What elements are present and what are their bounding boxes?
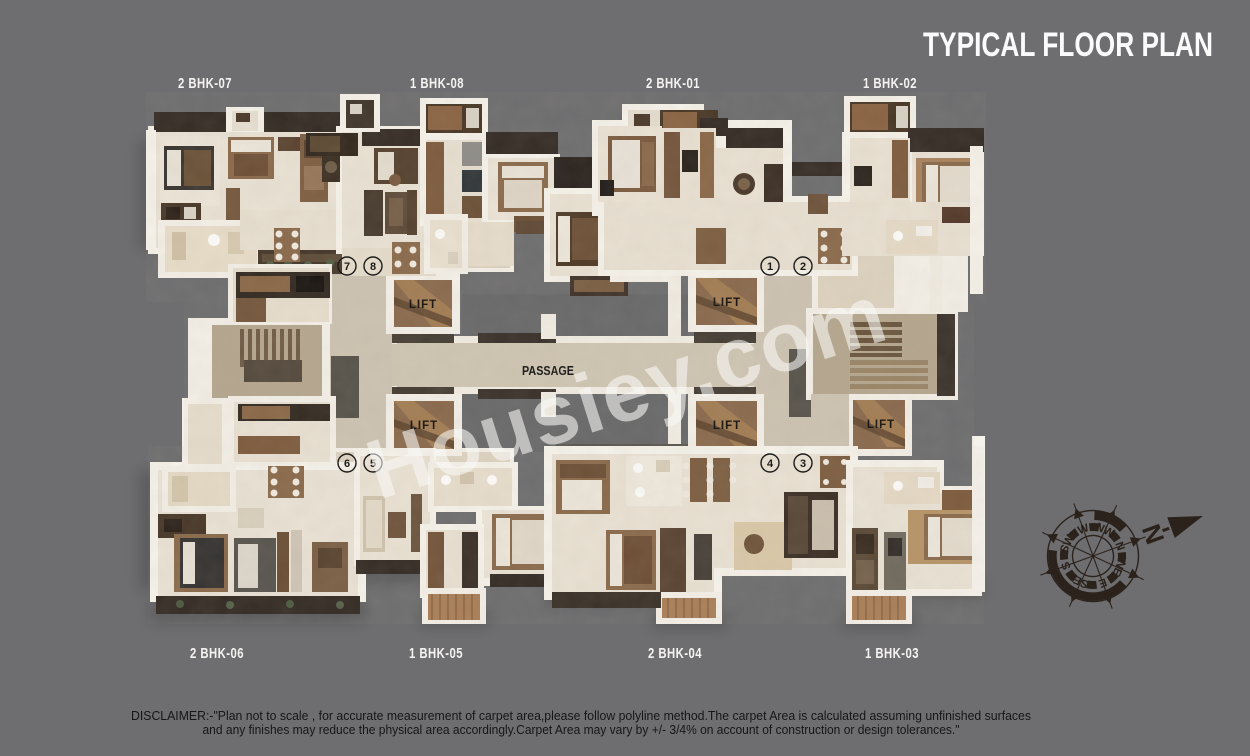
svg-text:8: 8 — [370, 261, 376, 273]
svg-text:1 BHK-03: 1 BHK-03 — [865, 645, 919, 662]
svg-text:2 BHK-01: 2 BHK-01 — [646, 75, 700, 92]
svg-text:4: 4 — [767, 458, 774, 470]
svg-text:1 BHK-02: 1 BHK-02 — [863, 75, 917, 92]
svg-text:1 BHK-08: 1 BHK-08 — [410, 75, 464, 92]
svg-text:2 BHK-06: 2 BHK-06 — [190, 645, 244, 662]
svg-text:3: 3 — [800, 458, 806, 470]
svg-text:1 BHK-05: 1 BHK-05 — [409, 645, 463, 662]
svg-text:2: 2 — [800, 261, 806, 273]
svg-text:1: 1 — [767, 261, 773, 273]
svg-text:and any finishes may reduce th: and any finishes may reduce the physical… — [203, 723, 960, 737]
svg-text:6: 6 — [344, 458, 350, 470]
svg-text:2 BHK-04: 2 BHK-04 — [648, 645, 702, 662]
svg-text:2 BHK-07: 2 BHK-07 — [178, 75, 232, 92]
svg-text:DISCLAIMER:-"Plan not to scale: DISCLAIMER:-"Plan not to scale , for acc… — [131, 709, 1031, 723]
svg-text:TYPICAL FLOOR PLAN: TYPICAL FLOOR PLAN — [923, 26, 1213, 64]
svg-text:7: 7 — [344, 261, 350, 273]
